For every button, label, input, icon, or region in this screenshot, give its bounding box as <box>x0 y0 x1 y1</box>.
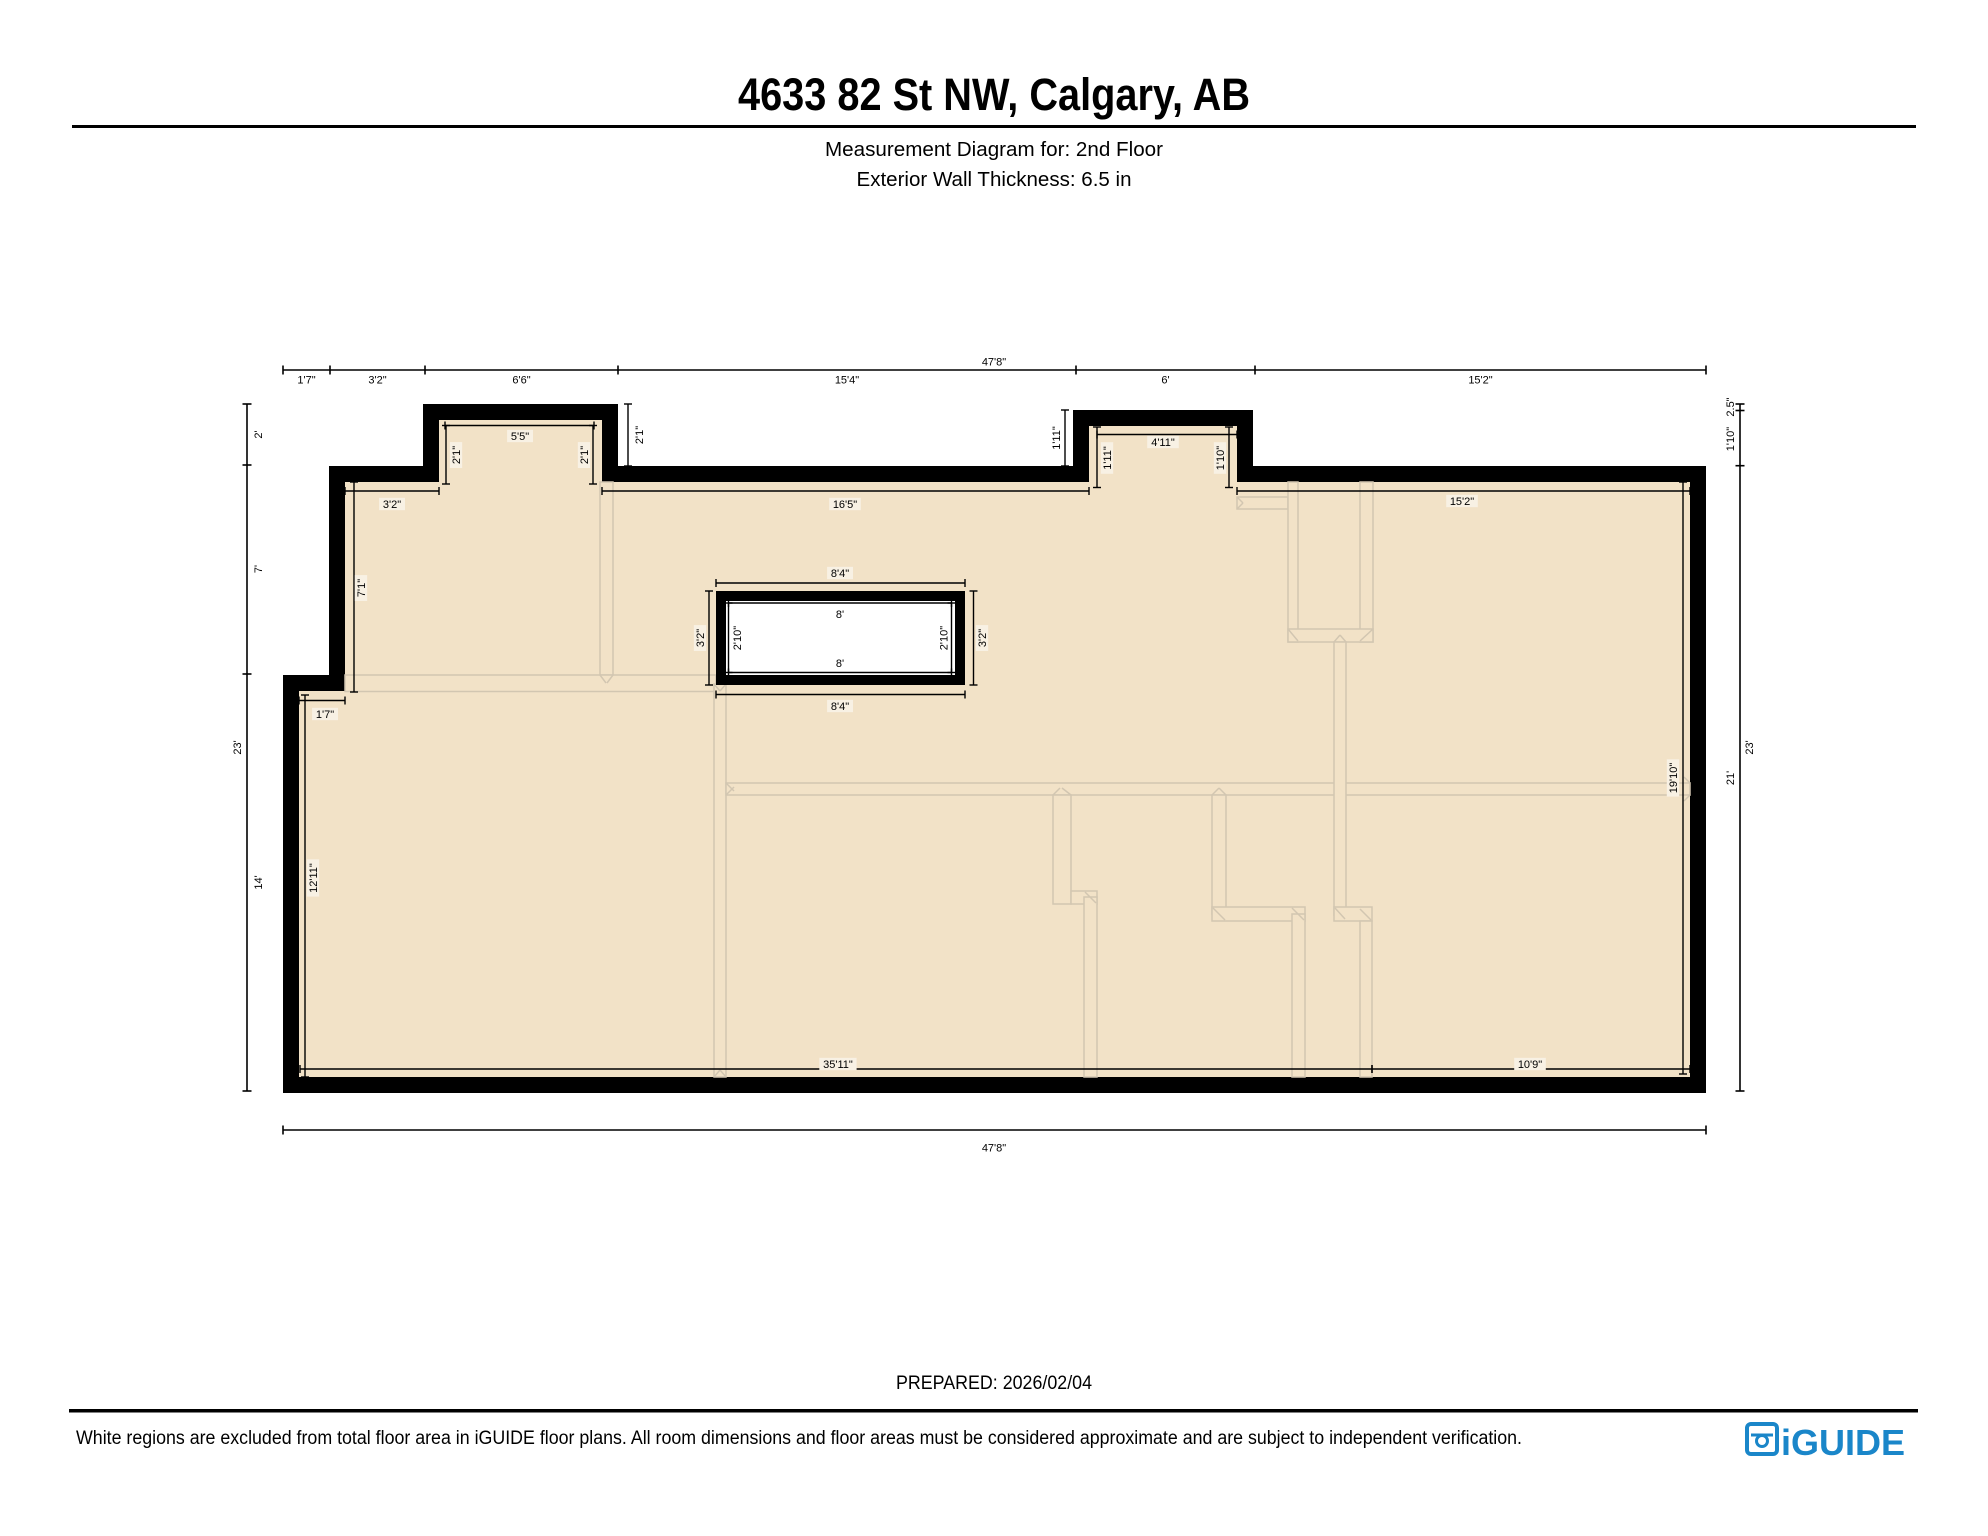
svg-text:10'9": 10'9" <box>1518 1059 1542 1071</box>
svg-text:23': 23' <box>232 740 244 754</box>
svg-text:2': 2' <box>253 430 265 438</box>
svg-text:4633 82 St NW, Calgary, AB: 4633 82 St NW, Calgary, AB <box>738 69 1250 120</box>
svg-text:White regions are excluded fro: White regions are excluded from total fl… <box>76 1428 1522 1449</box>
svg-text:47'8": 47'8" <box>982 356 1006 368</box>
svg-text:7': 7' <box>253 565 265 573</box>
svg-text:15'2": 15'2" <box>1468 374 1492 386</box>
svg-text:2'1": 2'1" <box>579 446 591 464</box>
svg-text:Measurement Diagram for: 2nd F: Measurement Diagram for: 2nd Floor <box>825 139 1163 161</box>
svg-text:2'10": 2'10" <box>732 626 744 650</box>
svg-text:iGUIDE: iGUIDE <box>1781 1422 1905 1463</box>
svg-text:3'2": 3'2" <box>977 629 989 647</box>
svg-text:1'11": 1'11" <box>1051 426 1063 450</box>
svg-text:8'4": 8'4" <box>831 568 849 580</box>
svg-text:2'1": 2'1" <box>634 426 646 444</box>
svg-text:1'10": 1'10" <box>1725 427 1737 451</box>
svg-text:8': 8' <box>836 609 844 621</box>
svg-text:1'11": 1'11" <box>1102 446 1114 470</box>
svg-text:3'2": 3'2" <box>383 499 401 511</box>
svg-text:PREPARED: 2026/02/04: PREPARED: 2026/02/04 <box>896 1373 1092 1394</box>
svg-text:14': 14' <box>253 875 265 889</box>
svg-text:23': 23' <box>1744 740 1756 754</box>
svg-text:1'10": 1'10" <box>1215 446 1227 470</box>
svg-text:1'7": 1'7" <box>297 374 315 386</box>
svg-text:6': 6' <box>1161 374 1169 386</box>
svg-text:1'7": 1'7" <box>316 709 334 721</box>
svg-text:3'2": 3'2" <box>695 629 707 647</box>
svg-text:12'11": 12'11" <box>308 863 320 893</box>
svg-text:2'1": 2'1" <box>451 446 463 464</box>
svg-text:15'2": 15'2" <box>1450 496 1474 508</box>
svg-text:3'2": 3'2" <box>368 374 386 386</box>
svg-text:16'5": 16'5" <box>833 499 857 511</box>
svg-text:8': 8' <box>836 658 844 670</box>
svg-text:21': 21' <box>1725 771 1737 785</box>
svg-text:15'4": 15'4" <box>835 374 859 386</box>
svg-text:35'11": 35'11" <box>823 1059 853 1071</box>
svg-text:2'10": 2'10" <box>938 626 950 650</box>
svg-text:8'4": 8'4" <box>831 701 849 713</box>
svg-text:2.5": 2.5" <box>1725 397 1737 416</box>
svg-text:7'1": 7'1" <box>356 579 368 597</box>
svg-text:4'11": 4'11" <box>1151 437 1175 449</box>
svg-text:19'10": 19'10" <box>1668 763 1680 794</box>
svg-text:Exterior Wall Thickness: 6.5 i: Exterior Wall Thickness: 6.5 in <box>857 169 1132 191</box>
svg-text:47'8": 47'8" <box>982 1142 1006 1154</box>
svg-text:6'6": 6'6" <box>512 374 530 386</box>
svg-text:5'5": 5'5" <box>511 431 529 443</box>
